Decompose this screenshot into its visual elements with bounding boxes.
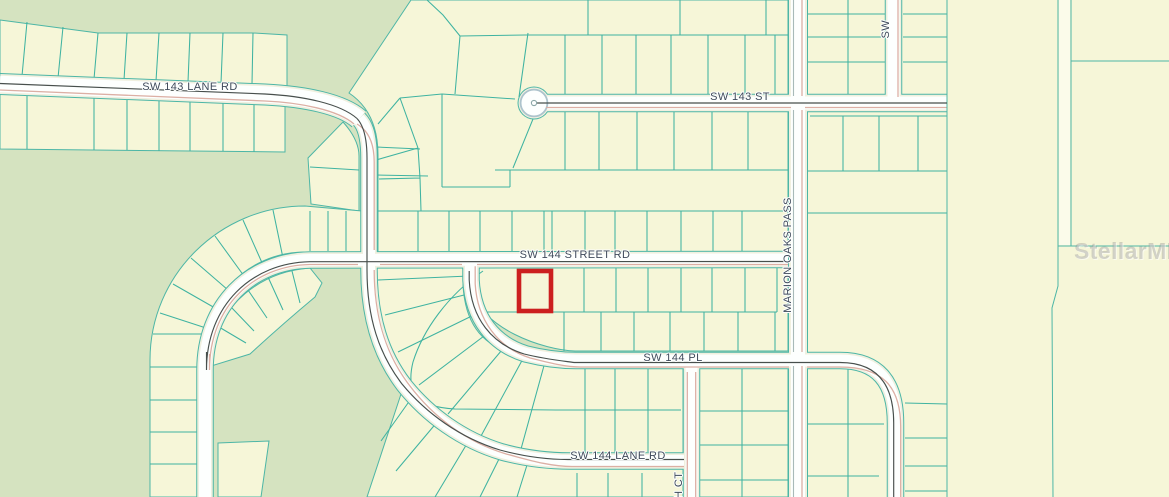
svg-text:SW 144 STREET RD: SW 144 STREET RD [520, 249, 631, 261]
svg-text:SW: SW [880, 20, 892, 39]
svg-text:StellarMLS: StellarMLS [1074, 238, 1169, 264]
svg-text:SW 144 PL: SW 144 PL [643, 352, 702, 364]
svg-text:SW 143 ST: SW 143 ST [710, 91, 770, 103]
svg-text:SW 144 LANE RD: SW 144 LANE RD [570, 450, 665, 462]
svg-text:MARION OAKS PASS: MARION OAKS PASS [782, 197, 794, 313]
svg-text:SW 143 LANE RD: SW 143 LANE RD [142, 81, 237, 93]
svg-text:TH CT: TH CT [673, 472, 685, 497]
